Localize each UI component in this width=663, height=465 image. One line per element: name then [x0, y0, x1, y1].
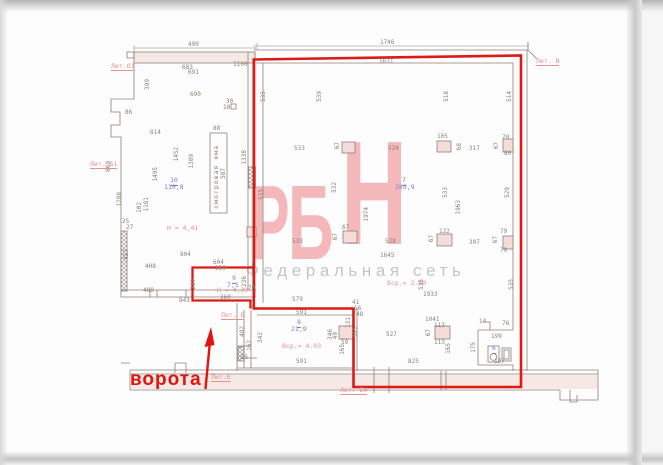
plan-label: 359: [215, 266, 226, 272]
plan-label: 67: [493, 236, 499, 243]
plan-label: 1495: [153, 167, 159, 181]
plan-label: 533: [292, 239, 303, 245]
plan-label: 79: [500, 229, 507, 235]
plan-label: 535: [419, 279, 425, 290]
plan-label: 80: [504, 151, 511, 157]
plan-label: 399: [145, 79, 151, 90]
plan-label: 1452: [174, 147, 180, 161]
plan-label: 587: [221, 168, 227, 179]
plan-label: 197: [494, 359, 505, 365]
plan-label: 317: [469, 146, 480, 152]
plan-label: 524: [388, 146, 399, 152]
plan-label: Н = 4,39: [217, 287, 248, 294]
plan-label: 55: [241, 355, 248, 361]
plan-label: 528: [385, 239, 396, 245]
plan-label: 690: [190, 92, 201, 98]
plan-label: 1645: [380, 253, 394, 259]
plan-label: 1611: [379, 59, 393, 65]
plan-label: 1100: [233, 62, 247, 68]
plan-label: 1933: [423, 292, 437, 298]
plan-label: 289: [191, 279, 197, 290]
plan-label: 482: [240, 326, 246, 337]
plan-label: 307: [469, 240, 480, 246]
plan-label: 79: [500, 248, 507, 254]
plan-label: 591: [296, 359, 307, 365]
plan-label: 162: [247, 340, 253, 351]
plan-label: 535: [259, 189, 265, 200]
plan-label: 533: [294, 146, 305, 152]
plan-label: Лит. Б4: [340, 387, 367, 395]
plan-label: 1338: [242, 150, 248, 164]
plan-label: 102: [137, 202, 143, 213]
plan-label: 21,9: [291, 326, 307, 333]
plan-label: 527: [386, 332, 397, 338]
plan-label: 6: [492, 345, 496, 354]
plan-label: 67: [494, 142, 500, 149]
plan-label: 165: [340, 344, 346, 355]
plan-label: 535: [261, 91, 267, 102]
plan-label: 365: [353, 327, 359, 338]
plan-label: 514: [507, 91, 513, 102]
plan-label: 591: [296, 310, 307, 316]
plan-label: 68: [457, 143, 463, 150]
plan-label: 27: [126, 225, 133, 231]
plan-label: 360: [220, 295, 231, 301]
plan-label: смотровая яма: [213, 145, 220, 209]
gate-annotation-label: ворота: [130, 370, 202, 389]
plan-label: 490: [188, 42, 199, 48]
plan-label: 843: [179, 298, 190, 304]
plan-label: Лит. Б: [221, 312, 244, 320]
plan-labels-layer: 4901746683691690161111003998630108148814…: [0, 0, 663, 465]
plan-label: 86: [125, 110, 132, 116]
plan-label: 535: [509, 279, 515, 290]
plan-label: 579: [292, 297, 303, 303]
plan-label: Лит. В: [536, 58, 559, 66]
plan-label: 67: [426, 329, 432, 336]
plan-label: Лит.б1: [111, 63, 134, 71]
plan-label: Н = 4,41: [167, 225, 198, 232]
plan-label: 76: [502, 321, 509, 327]
plan-label: Вср.= 4.03: [282, 343, 321, 350]
plan-label: 1746: [380, 40, 394, 46]
plan-label: Лит.б: [211, 374, 231, 382]
plan-label: Лит. Б1: [90, 161, 117, 169]
plan-label: 1963: [456, 200, 462, 214]
plan-label: 113: [434, 340, 445, 346]
plan-label: 691: [188, 70, 199, 76]
plan-label: 457: [124, 249, 130, 260]
plan-label: 122: [439, 229, 450, 235]
plan-label: 408: [143, 288, 154, 294]
plan-label: 814: [150, 130, 161, 136]
plan-label: 67: [429, 235, 435, 242]
plan-label: 70: [502, 135, 509, 141]
plan-label: 48: [356, 312, 363, 318]
plan-label: 289,9: [395, 184, 415, 191]
plan-label: 804: [180, 252, 191, 258]
plan-label: 533: [443, 187, 449, 198]
plan-label: 113: [434, 323, 445, 329]
plan-label: 539: [317, 91, 323, 102]
plan-label: 88: [213, 126, 220, 132]
plan-label: 532: [332, 182, 338, 193]
plan-label: 67: [342, 225, 349, 231]
plan-label: 67: [335, 142, 341, 149]
scanned-floorplan-page: Р Б Н Федеральная сеть: [0, 0, 663, 465]
plan-label: 105: [437, 134, 448, 140]
plan-label: 110,8: [164, 184, 184, 191]
plan-label: 529: [505, 187, 511, 198]
plan-label: 1181: [144, 197, 150, 211]
plan-label: 70: [248, 286, 255, 292]
plan-label: 67: [333, 233, 339, 240]
plan-label: 14: [479, 319, 486, 325]
plan-label: 165: [446, 343, 452, 354]
plan-label: 1309: [189, 154, 195, 168]
plan-label: 342: [258, 332, 264, 343]
plan-label: 49: [333, 332, 339, 339]
plan-label: 825: [408, 359, 419, 365]
plan-label: 175: [471, 342, 477, 353]
plan-label: 518: [444, 91, 450, 102]
plan-label: 1974: [364, 207, 370, 221]
plan-label: 199: [491, 334, 502, 340]
plan-label: 10: [223, 105, 230, 111]
plan-label: 1288: [117, 192, 123, 206]
plan-label: 408: [145, 264, 156, 270]
